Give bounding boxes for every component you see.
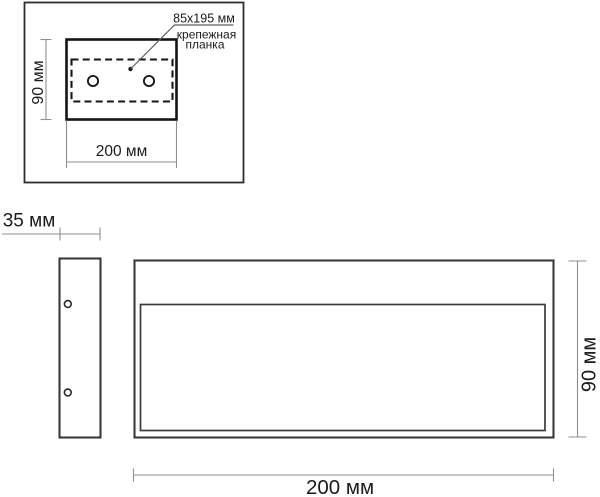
technical-drawing-canvas: 90 мм 200 мм 85x195 мм крепежная планка … [0,0,600,497]
front-view: 90 мм 200 мм [134,261,600,497]
top-view: 90 мм 200 мм 85x195 мм крепежная планка [25,3,244,183]
front-view-outer-rect [135,261,554,438]
side-view: 35 мм [2,211,101,438]
mounting-hole-left [88,76,98,86]
top-height-dim-label: 90 мм [30,60,47,104]
plate-size-label: 85x195 мм [173,12,235,26]
side-depth-dim-label: 35 мм [3,211,56,232]
drawing-svg: 90 мм 200 мм 85x195 мм крепежная планка … [0,0,600,497]
side-hole-top [64,301,71,308]
side-view-body-rect [60,259,101,438]
top-width-dim-label: 200 мм [96,143,147,160]
front-height-dim-label: 90 мм [579,337,600,392]
front-width-dim-label: 200 мм [306,476,374,497]
mounting-hole-right [144,76,154,86]
top-view-body-rect [67,40,177,120]
side-hole-bottom [64,389,71,396]
plate-name-line2: планка [186,38,225,52]
